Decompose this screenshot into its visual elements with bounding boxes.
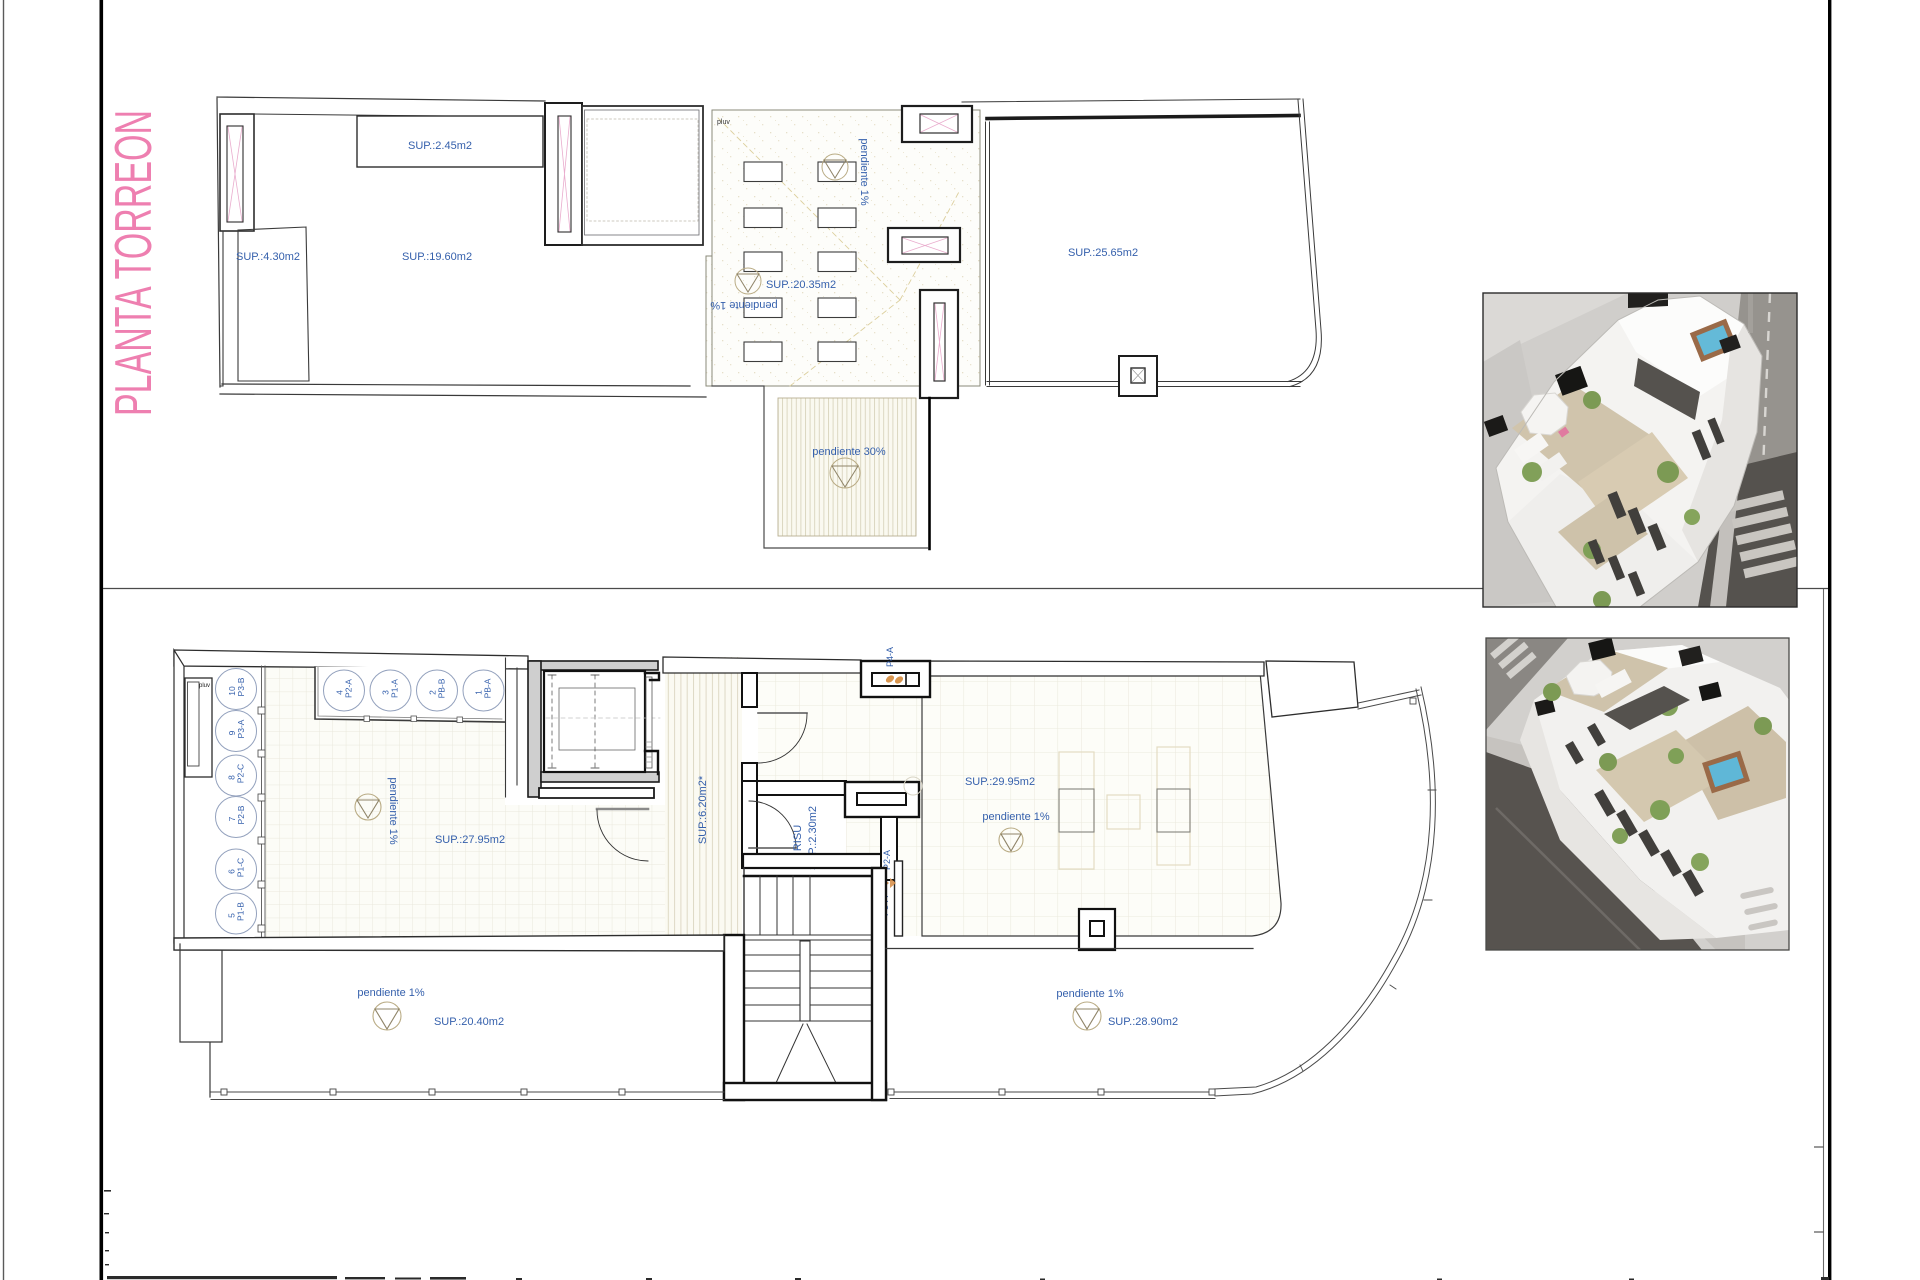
- svg-text:SUP.:29.95m2: SUP.:29.95m2: [965, 776, 1035, 788]
- svg-text:pluv: pluv: [199, 683, 210, 689]
- svg-text:pendiente 1%: pendiente 1%: [1056, 988, 1123, 1000]
- svg-text:P3-B: P3-B: [236, 677, 246, 696]
- svg-text:RISU: RISU: [792, 825, 804, 851]
- svg-text:P1-C: P1-C: [236, 858, 246, 877]
- svg-text:pendiente 1%: pendiente 1%: [982, 811, 1049, 823]
- svg-text:SUP.:28.90m2: SUP.:28.90m2: [1108, 1016, 1178, 1028]
- svg-text:P2-A: P2-A: [344, 679, 354, 698]
- svg-text:P3-A: P3-A: [236, 719, 246, 738]
- svg-text:PB-A: PB-A: [483, 678, 493, 698]
- svg-text:pluv: pluv: [717, 119, 730, 126]
- svg-text:P4-A: P4-A: [885, 647, 895, 667]
- svg-text:pendiente 1%: pendiente 1%: [357, 987, 424, 999]
- svg-text:P2-C: P2-C: [236, 764, 246, 783]
- svg-text:P1-A: P1-A: [390, 679, 400, 698]
- svg-text:SUP.:4.30m2: SUP.:4.30m2: [236, 251, 300, 263]
- svg-text:P1-B: P1-B: [236, 902, 246, 921]
- svg-text:SUP.:2.45m2: SUP.:2.45m2: [408, 140, 472, 152]
- svg-text:pendiente 30%: pendiente 30%: [812, 446, 886, 458]
- svg-text:PLANTA TORREON: PLANTA TORREON: [105, 110, 163, 416]
- svg-text:SUP.:27.95m2: SUP.:27.95m2: [435, 834, 505, 846]
- svg-text:SUP.:19.60m2: SUP.:19.60m2: [402, 251, 472, 263]
- svg-text:SUP.:25.65m2: SUP.:25.65m2: [1068, 247, 1138, 259]
- svg-text:SUP.:20.40m2: SUP.:20.40m2: [434, 1016, 504, 1028]
- svg-text:SUP.:20.35m2: SUP.:20.35m2: [766, 279, 836, 291]
- svg-text:pendiente 1%: pendiente 1%: [858, 138, 870, 205]
- svg-text:P2-B: P2-B: [236, 805, 246, 824]
- svg-text:PB-B: PB-B: [437, 678, 447, 698]
- svg-text:pendiente 1%: pendiente 1%: [710, 299, 777, 311]
- svg-text:SUP.:6.20m2*: SUP.:6.20m2*: [697, 775, 709, 844]
- svg-text:pendiente 1%: pendiente 1%: [387, 777, 399, 844]
